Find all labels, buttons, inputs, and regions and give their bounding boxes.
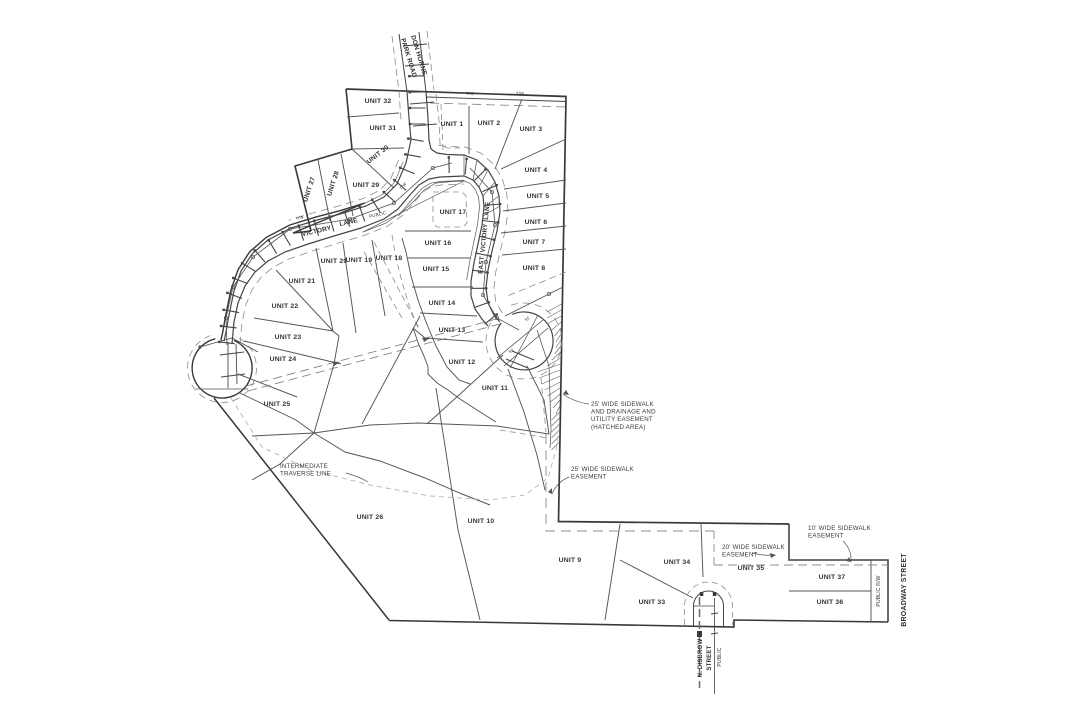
svg-text:PUBLIC R/W: PUBLIC R/W [876, 575, 882, 606]
svg-text:UNIT 37: UNIT 37 [819, 574, 846, 581]
svg-text:UNIT 5: UNIT 5 [527, 193, 550, 200]
svg-text:UNIT 36: UNIT 36 [817, 599, 844, 606]
svg-text:UNIT 7: UNIT 7 [523, 239, 546, 246]
svg-text:UNIT 11: UNIT 11 [482, 385, 508, 392]
svg-text:UNIT 20: UNIT 20 [321, 258, 348, 265]
svg-text:UNIT 16: UNIT 16 [425, 240, 452, 247]
svg-text:UNIT 18: UNIT 18 [376, 255, 403, 262]
svg-text:UNIT 23: UNIT 23 [275, 334, 302, 341]
svg-text:UNIT 17: UNIT 17 [440, 209, 467, 216]
svg-text:UNIT 2: UNIT 2 [478, 120, 501, 127]
svg-text:UNIT 14: UNIT 14 [429, 300, 456, 307]
svg-text:UNIT 29: UNIT 29 [353, 182, 380, 189]
svg-text:UNIT 12: UNIT 12 [449, 359, 476, 366]
svg-text:UNIT 22: UNIT 22 [272, 303, 299, 310]
svg-text:UNIT 3: UNIT 3 [520, 126, 543, 133]
svg-text:UNIT 6: UNIT 6 [525, 219, 548, 226]
svg-text:UNIT 32: UNIT 32 [365, 98, 392, 105]
svg-text:UNIT 9: UNIT 9 [559, 557, 582, 564]
svg-text:T/W: T/W [466, 91, 474, 96]
svg-text:UNIT 1: UNIT 1 [441, 121, 464, 128]
svg-text:UNIT 10: UNIT 10 [468, 518, 495, 525]
svg-text:UNIT 13: UNIT 13 [439, 327, 466, 334]
svg-text:UNIT 31: UNIT 31 [370, 125, 397, 132]
svg-text:INTERMEDIATETRAVERSE LINE: INTERMEDIATETRAVERSE LINE [280, 463, 331, 478]
svg-text:BROADWAY STREET: BROADWAY STREET [901, 553, 908, 627]
svg-text:UNIT 34: UNIT 34 [664, 559, 691, 566]
svg-text:UNIT 33: UNIT 33 [639, 599, 666, 606]
svg-text:PUBLIC: PUBLIC [717, 647, 723, 666]
svg-text:STREET: STREET [707, 645, 713, 670]
svg-text:UNIT 8: UNIT 8 [523, 265, 546, 272]
svg-text:UNIT 4: UNIT 4 [525, 167, 548, 174]
svg-text:UNIT 24: UNIT 24 [270, 356, 297, 363]
svg-text:UNIT 26: UNIT 26 [357, 514, 384, 521]
svg-text:UNIT 15: UNIT 15 [423, 266, 450, 273]
svg-text:T/W: T/W [516, 91, 524, 96]
svg-text:UNIT 19: UNIT 19 [346, 257, 373, 264]
svg-text:N. DISBROW: N. DISBROW [698, 639, 704, 678]
svg-text:UNIT 25: UNIT 25 [264, 401, 291, 408]
svg-text:UNIT 35: UNIT 35 [738, 565, 765, 572]
svg-text:UNIT 21: UNIT 21 [289, 278, 316, 285]
